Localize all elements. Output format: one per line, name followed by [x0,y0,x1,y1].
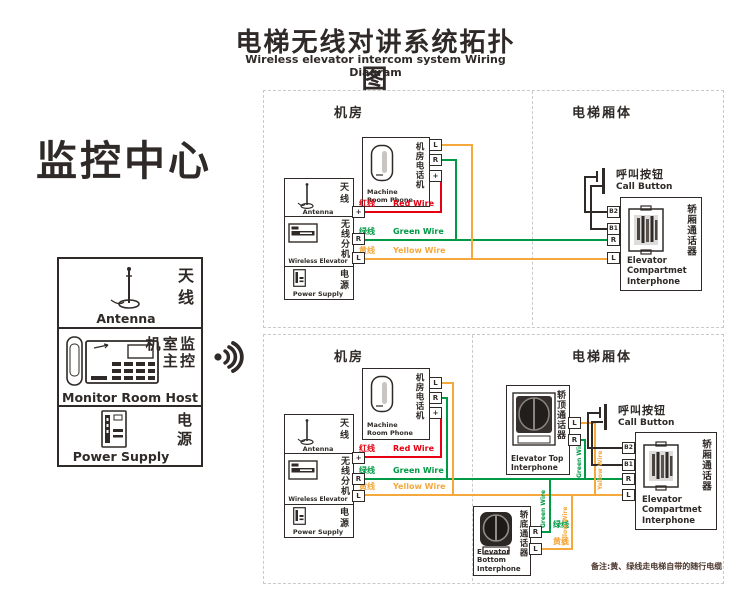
compartment-interphone-en: Elevator Compartmet Interphone [642,495,702,527]
unit-power-zh: 电源 [338,269,348,291]
yellow-wire [452,383,454,496]
call-button-label-zh: 呼叫按钮 [618,405,666,416]
unit-power-row: 电源 Power Supply [285,267,353,298]
region-top-machine-room-label: 机房 [334,102,364,121]
monitor-power-label-en: Power Supply [61,451,181,464]
region-bottom-machine-room-label: 机房 [334,346,364,365]
green-wire [542,531,551,533]
power-supply-icon [293,507,306,525]
call-button-wire [590,228,607,230]
monitor-host-row: 监控室主机 Monitor Room Host [59,329,201,407]
unit-wireless-row: 无线分机 Wireless Elevator [285,217,353,267]
terminal-l: L [607,252,620,264]
rf-signal-icon [210,336,252,378]
region-top-divider [532,91,533,325]
call-button-wire [584,211,607,213]
machine-room-phone-en: Machine Room Phone [367,421,413,437]
call-button-contact [596,171,598,182]
terminal-b2: B2 [607,206,620,218]
unit-power-en: Power Supply [285,529,351,536]
antenna-icon [297,181,315,211]
red-wire [355,456,442,458]
red-wire [440,413,442,458]
unit-power-row: 电源 Power Supply [285,505,353,536]
unit-antenna-zh: 天线 [338,418,348,444]
handset-icon [370,375,394,413]
machine-room-phone-box-top: 机房电话机 Machine Room Phone [362,137,430,207]
terminal-b2: B2 [622,442,635,454]
yellow-wire [571,496,573,550]
terminal-r: R [429,392,442,404]
green-wire [584,440,586,480]
yellow-wire-label-en: Yellow Wire [393,483,446,491]
compartment-interphone-en: Elevator Compartmet Interphone [627,256,687,288]
monitor-antenna-label-en: Antenna [71,313,181,326]
terminal-plus: + [429,170,442,182]
terminal-l: L [622,489,635,501]
terminal-l: L [352,490,365,502]
machine-room-phone-box-bottom: 机房电话机 Machine Room Phone [362,368,430,440]
handset-icon [370,144,394,182]
unit-antenna-en: Antenna [285,209,351,216]
terminal-r: R [352,473,365,485]
green-wire-vertical-label: Green Wire [541,490,547,528]
unit-wireless-en: Wireless Elevator [285,497,351,503]
unit-box-top: 天线 Antenna 无线分机 Wireless Elevator 电源 Pow… [284,178,354,300]
call-button-wire [584,176,586,213]
monitor-antenna-row: 天线 Antenna [59,259,201,329]
green-wire [446,398,448,479]
region-bottom-elevator-car-label: 电梯厢体 [572,346,632,365]
monitor-host-label-en: Monitor Room Host [59,392,201,405]
terminal-r: R [429,154,442,166]
terminal-r: R [529,526,542,538]
wiring-diagram-canvas: 电梯无线对讲系统拓扑图 Wireless elevator intercom s… [0,0,750,589]
terminal-r: R [622,473,635,485]
elevator-top-interphone-box: 轿顶通话器 Elevator Top Interphone [506,385,570,475]
call-button-wire [590,185,592,230]
terminal-r: R [607,234,620,246]
unit-wireless-zh: 无线分机 [339,456,349,500]
monitor-power-label-zh: 电源 [175,412,192,452]
red-wire-label-en: Red Wire [393,445,434,453]
compartment-interphone-icon [628,205,664,255]
unit-antenna-zh: 天线 [338,182,348,208]
unit-antenna-row: 天线 Antenna [285,179,353,217]
terminal-l: L [568,417,581,429]
monitor-power-row: 电源 Power Supply [59,407,201,465]
unit-power-en: Power Supply [285,291,351,298]
terminal-r: R [568,434,581,446]
unit-wireless-zh: 无线分机 [339,219,349,263]
terminal-plus: + [352,206,365,218]
yellow-wire [355,494,622,496]
green-wire-label-en: Green Wire [393,228,444,236]
unit-wireless-en: Wireless Elevator [285,259,351,265]
monitor-center-box: 天线 Antenna 监控室主机 Monitor Room Host [57,257,203,467]
terminal-r: R [352,233,365,245]
yellow-wire-label-zh: 黄线 [553,538,569,546]
elevator-top-interphone-zh: 轿顶通话器 [555,390,565,448]
call-button-label-en: Call Button [616,183,672,192]
yellow-wire [594,423,596,496]
terminal-b1: B1 [622,459,635,471]
monitor-host-label-zh: 监控室主机 [143,336,195,386]
power-supply-icon [101,410,127,448]
unit-power-zh: 电源 [338,507,348,529]
compartment-interphone-zh: 轿厢通话器 [699,439,710,499]
antenna-icon [107,262,147,312]
compartment-interphone-icon [643,441,679,491]
elevator-top-interphone-icon [512,392,556,446]
unit-box-bottom: 天线 Antenna 无线分机 Wireless Elevator 电源 Pow… [284,414,354,538]
call-button-wire [590,185,602,187]
unit-wireless-row: 无线分机 Wireless Elevator [285,454,353,505]
terminal-plus: + [352,452,365,464]
terminal-l: L [429,139,442,151]
monitor-center-title: 监控中心 [36,127,212,187]
call-button-wire [591,421,593,466]
yellow-wire [355,258,609,260]
call-button-wire [591,464,622,466]
call-button-contact [599,407,601,418]
yellow-wire-vertical-label: Yellow Wire [598,451,604,490]
yellow-wire [442,144,473,146]
terminal-l: L [352,252,365,264]
green-wire-label-en: Green Wire [393,467,444,475]
yellow-wire [471,145,473,259]
green-wire [355,239,609,241]
power-supply-icon [293,269,306,287]
unit-antenna-en: Antenna [285,446,351,453]
green-wire [455,160,457,240]
wireless-unit-icon [288,460,318,480]
region-top-elevator-car-label: 电梯厢体 [572,102,632,121]
red-wire-label-en: Red Wire [393,200,434,208]
call-button-label-en: Call Button [618,419,674,428]
elevator-top-interphone-en: Elevator Top Interphone [511,454,563,472]
elevator-bottom-interphone-en: Elevator Bottom Interphone [477,548,530,574]
antenna-icon [297,417,315,447]
green-wire [355,478,622,480]
monitor-antenna-label-zh: 天线 [175,267,193,315]
terminal-l: L [429,377,442,389]
red-wire [355,211,442,213]
call-button-icon [602,168,605,194]
compartment-interphone-box-top: 轿厢通话器 Elevator Compartmet Interphone [620,197,702,291]
terminal-plus: + [429,407,442,419]
elevator-bottom-interphone-box: 轿底通话器 Elevator Bottom Interphone [473,506,531,576]
call-button-wire [591,421,603,423]
terminal-l: L [529,543,542,555]
yellow-wire [542,548,573,550]
footnote: 备注:黄、绿线走电梯自带的随行电缆 [591,561,722,572]
unit-antenna-row: 天线 Antenna [285,415,353,454]
call-button-wire [587,412,589,449]
compartment-interphone-box-bottom: 轿厢通话器 Elevator Compartmet Interphone [635,432,717,530]
call-button-label-zh: 呼叫按钮 [616,169,664,180]
page-subtitle: Wireless elevator intercom system Wiring… [218,53,533,79]
machine-room-phone-zh: 机房电话机 [413,373,423,425]
wireless-unit-icon [288,223,318,243]
yellow-wire-label-en: Yellow Wire [393,247,446,255]
green-wire [549,480,551,532]
machine-room-phone-zh: 机房电话机 [413,142,423,194]
call-button-icon [604,404,607,430]
